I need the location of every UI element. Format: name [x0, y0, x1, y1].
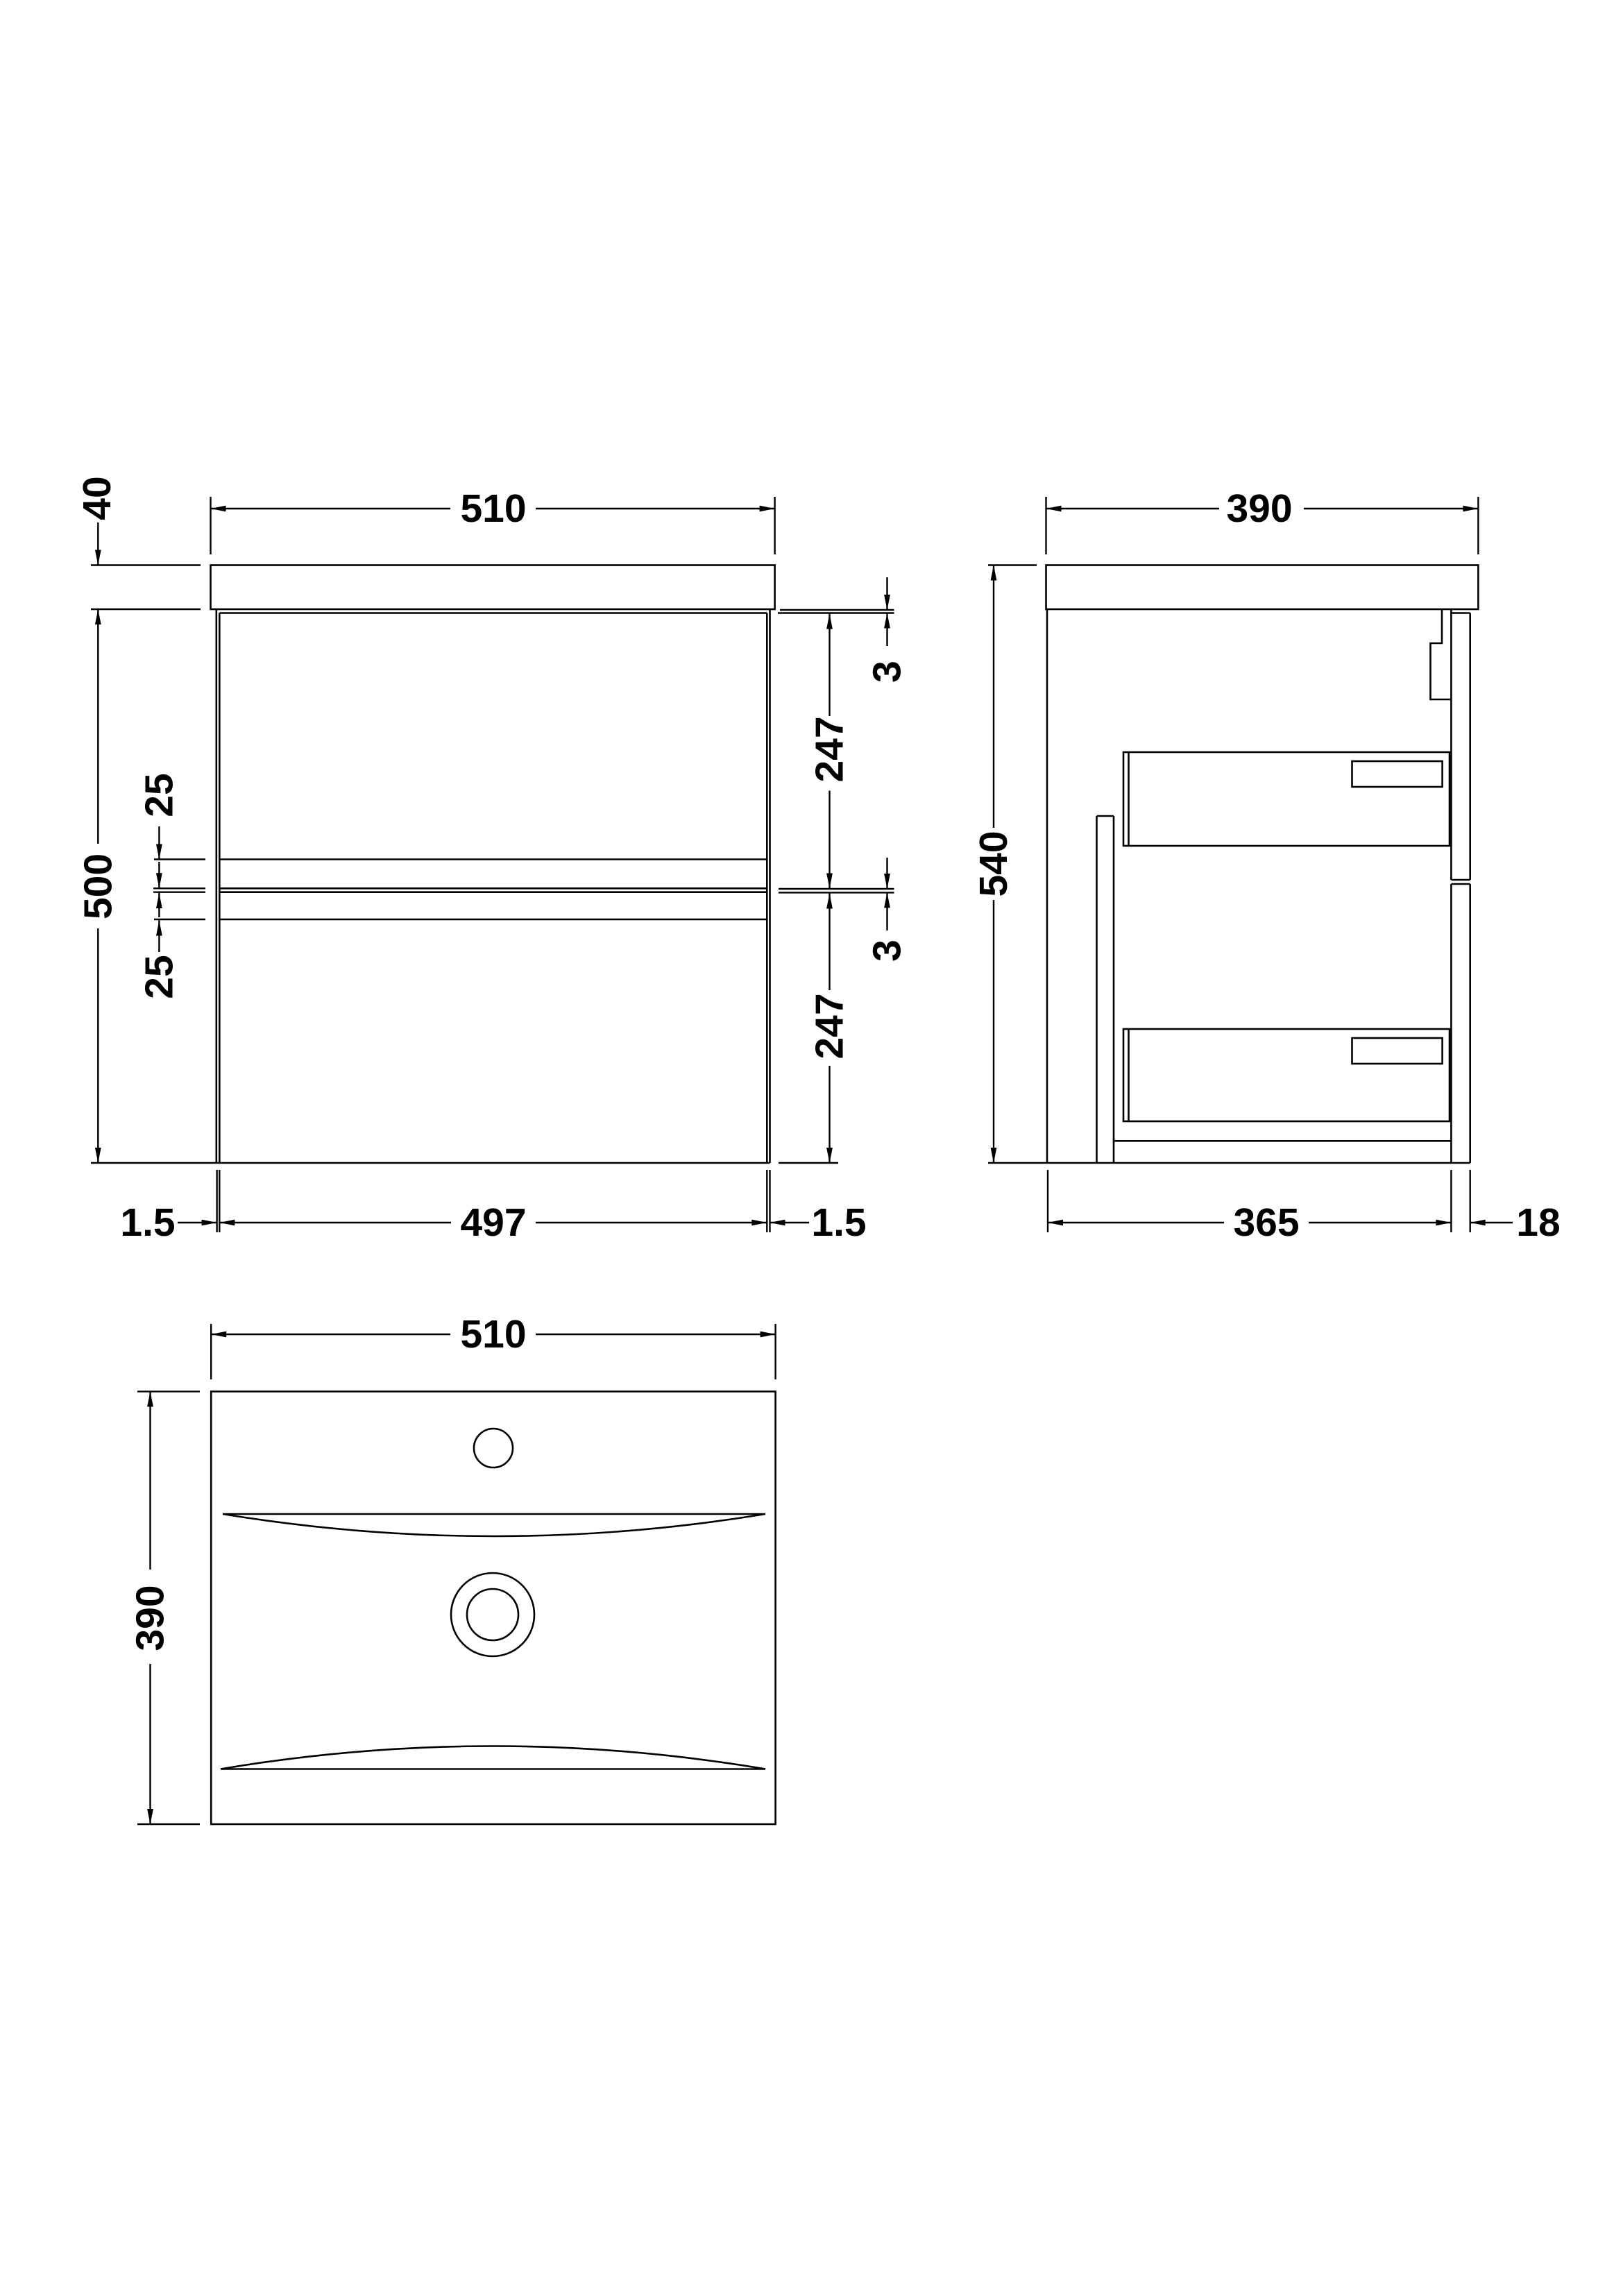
svg-text:540: 540	[971, 831, 1016, 896]
svg-text:500: 500	[76, 853, 120, 919]
svg-text:18: 18	[1516, 1200, 1560, 1245]
svg-text:510: 510	[460, 1312, 526, 1357]
svg-text:510: 510	[460, 486, 526, 531]
svg-text:25: 25	[137, 955, 181, 998]
svg-text:390: 390	[1226, 486, 1292, 531]
svg-text:365: 365	[1233, 1200, 1299, 1245]
svg-text:3: 3	[865, 939, 910, 962]
svg-text:25: 25	[137, 773, 181, 817]
svg-text:247: 247	[808, 993, 852, 1059]
svg-text:1.5: 1.5	[120, 1200, 175, 1245]
svg-text:40: 40	[75, 476, 119, 520]
svg-text:497: 497	[460, 1200, 526, 1245]
svg-text:3: 3	[865, 661, 910, 683]
svg-text:1.5: 1.5	[811, 1200, 866, 1245]
svg-text:247: 247	[808, 716, 852, 782]
svg-text:390: 390	[128, 1585, 173, 1651]
